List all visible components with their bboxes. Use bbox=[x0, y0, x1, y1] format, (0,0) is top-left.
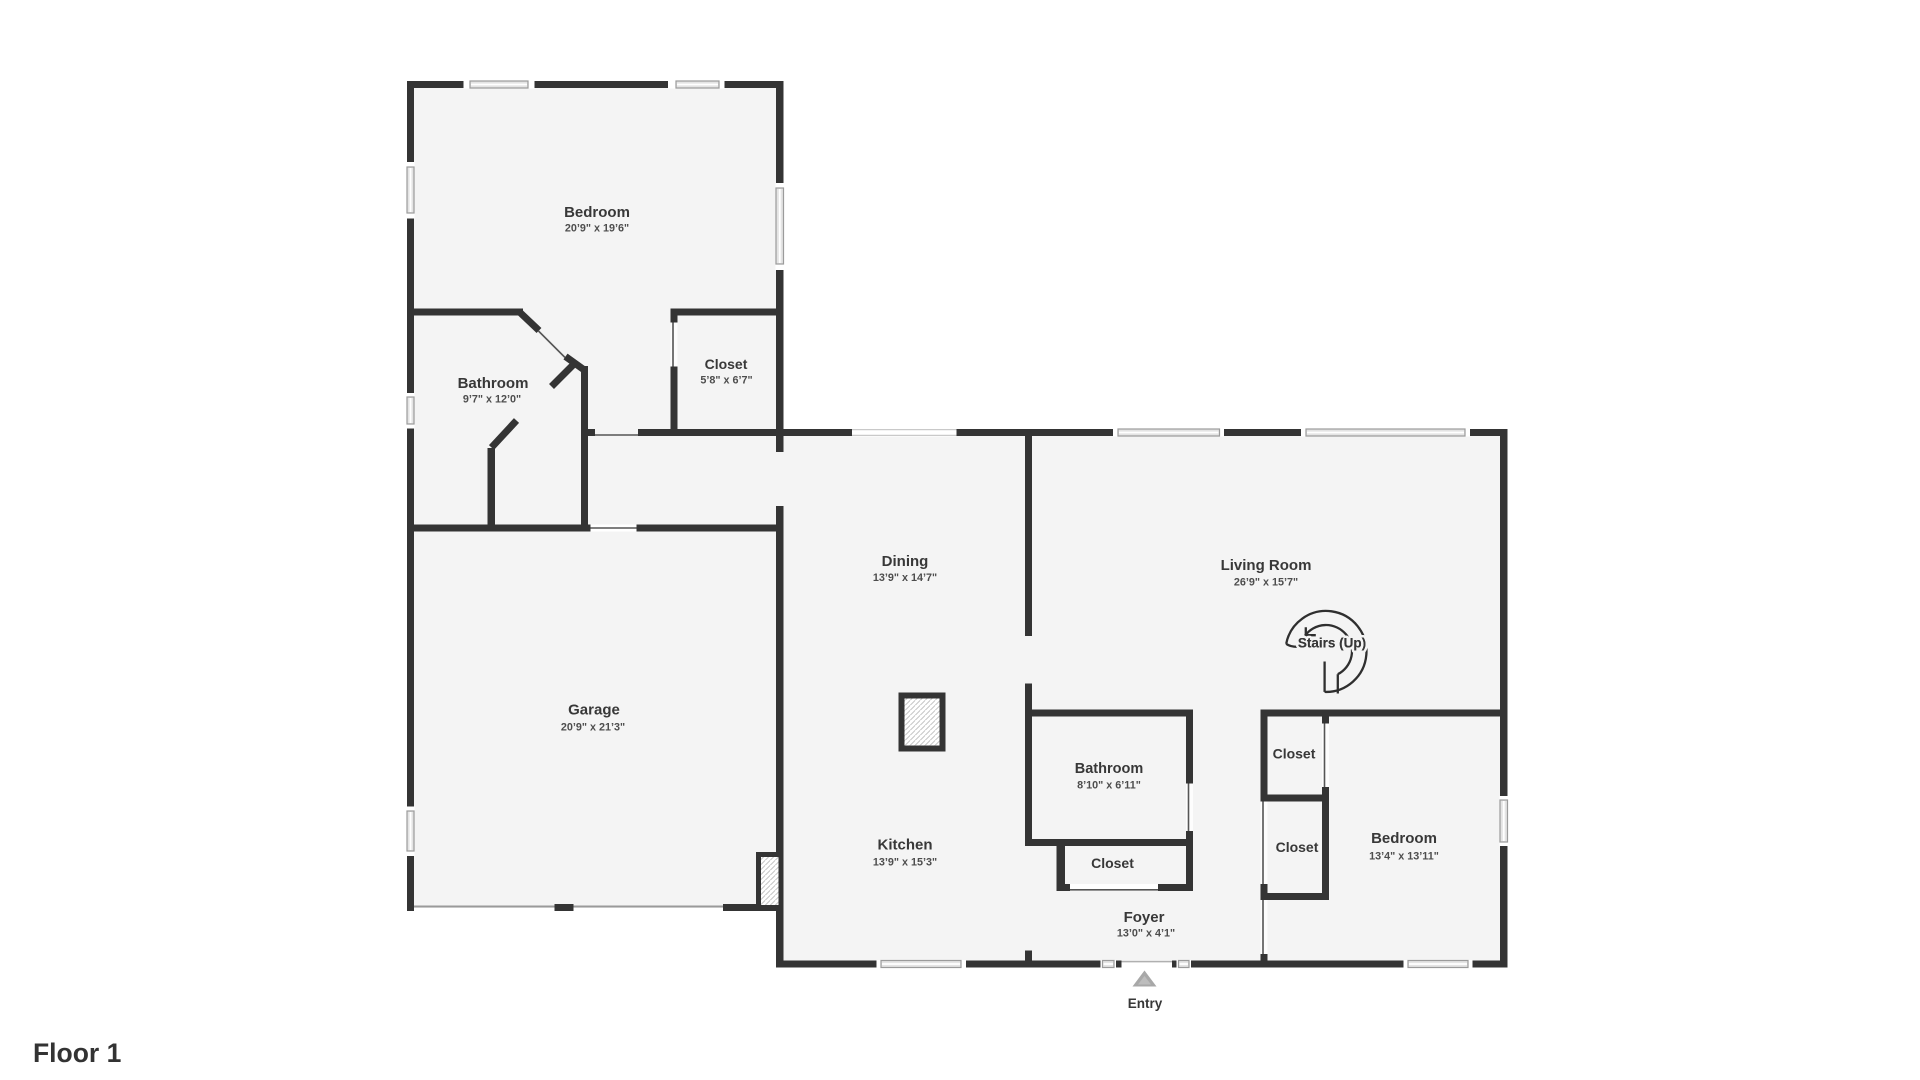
svg-text:Closet: Closet bbox=[1273, 746, 1316, 762]
svg-text:Bathroom: Bathroom bbox=[1075, 761, 1143, 777]
svg-text:Stairs (Up): Stairs (Up) bbox=[1298, 636, 1366, 651]
svg-text:Closet: Closet bbox=[1091, 855, 1134, 871]
svg-text:9’7" x 12’0": 9’7" x 12’0" bbox=[463, 394, 521, 406]
svg-text:8’10" x 6’11": 8’10" x 6’11" bbox=[1077, 780, 1141, 792]
svg-text:Bathroom: Bathroom bbox=[458, 375, 529, 392]
svg-text:Foyer: Foyer bbox=[1124, 909, 1165, 926]
svg-text:26’9" x 15’7": 26’9" x 15’7" bbox=[1234, 577, 1298, 589]
svg-text:Bedroom: Bedroom bbox=[1371, 830, 1437, 847]
svg-text:Closet: Closet bbox=[1276, 839, 1319, 855]
svg-text:13’9" x 14’7": 13’9" x 14’7" bbox=[873, 572, 937, 584]
svg-text:20’9" x 21’3": 20’9" x 21’3" bbox=[561, 722, 625, 734]
svg-text:20’9" x 19’6": 20’9" x 19’6" bbox=[565, 223, 629, 235]
svg-text:Closet: Closet bbox=[705, 356, 748, 372]
svg-text:Entry: Entry bbox=[1128, 996, 1163, 1011]
svg-text:Floor 1: Floor 1 bbox=[33, 1038, 121, 1068]
svg-text:Living Room: Living Room bbox=[1221, 557, 1312, 574]
svg-text:13’9" x 15’3": 13’9" x 15’3" bbox=[873, 857, 937, 869]
svg-text:Dining: Dining bbox=[882, 553, 929, 570]
svg-text:13’4" x 13’11": 13’4" x 13’11" bbox=[1369, 851, 1439, 863]
svg-text:13’0" x 4’1": 13’0" x 4’1" bbox=[1117, 928, 1175, 940]
svg-text:5’8" x 6’7": 5’8" x 6’7" bbox=[700, 375, 752, 387]
svg-text:Bedroom: Bedroom bbox=[564, 204, 630, 221]
svg-text:Garage: Garage bbox=[568, 702, 620, 719]
svg-text:Kitchen: Kitchen bbox=[877, 837, 932, 854]
